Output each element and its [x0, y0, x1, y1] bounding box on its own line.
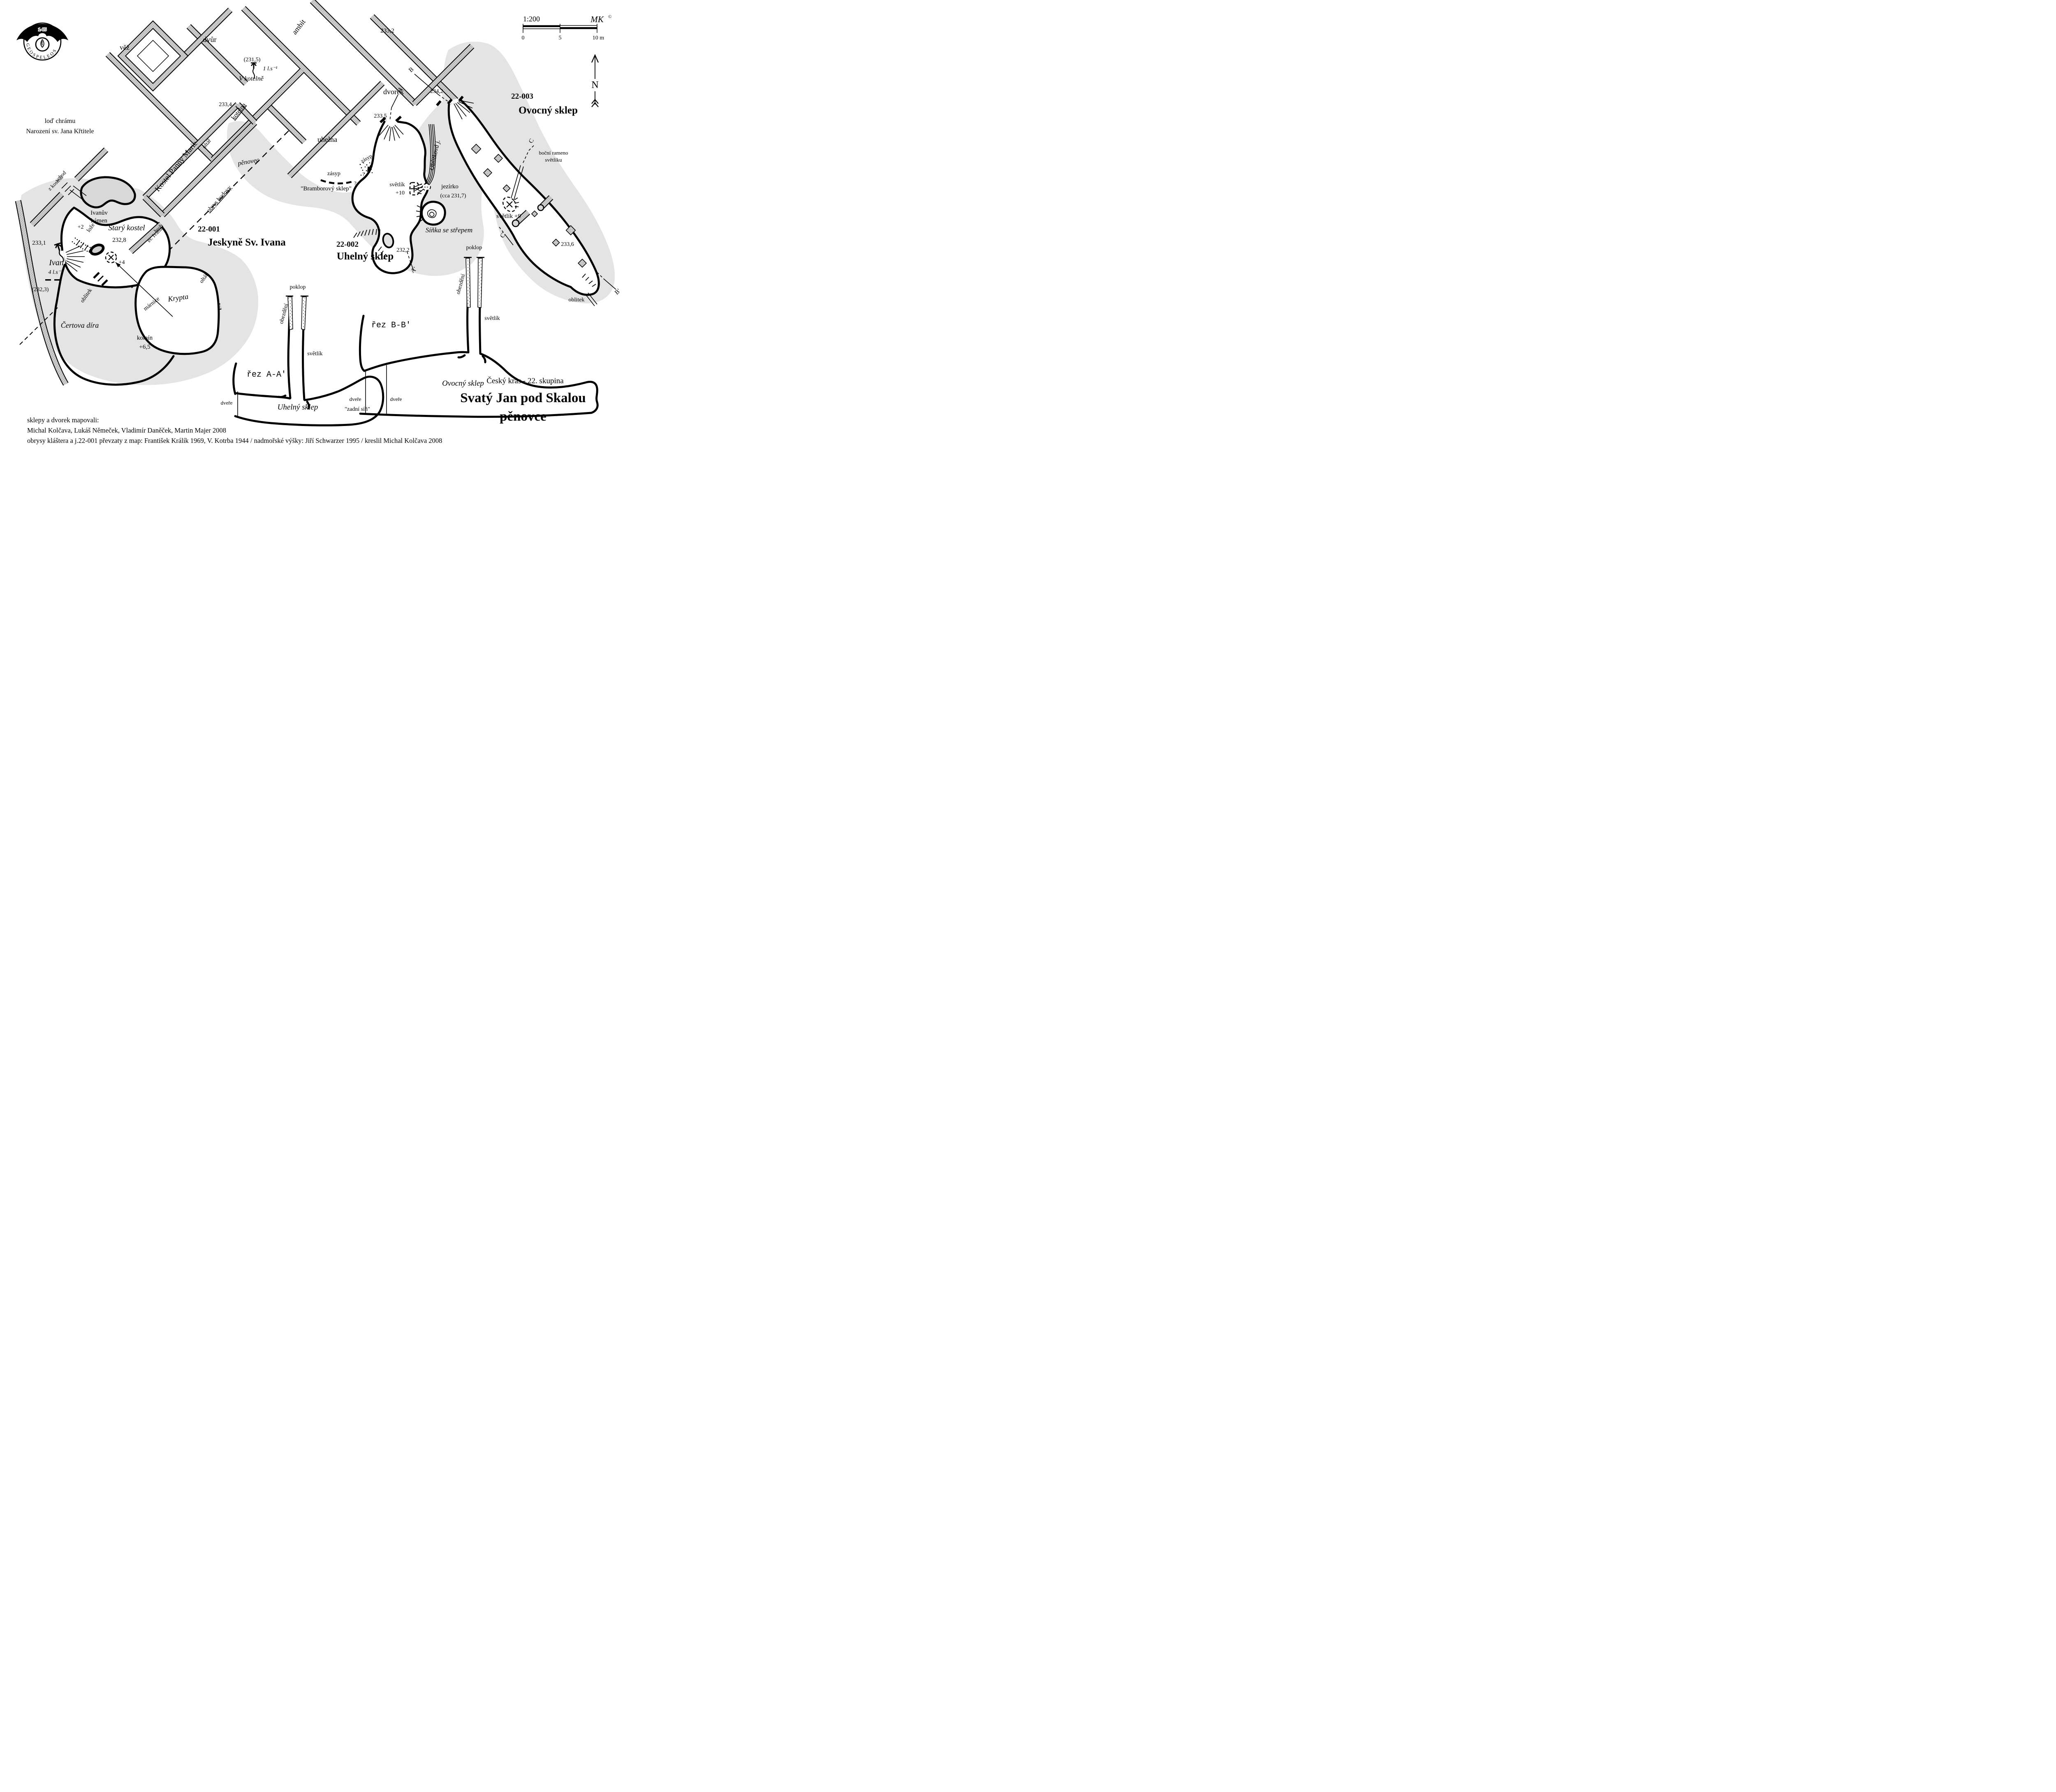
label-uhelna: uhelna — [317, 135, 337, 144]
label-rez-A: řez A-A' — [247, 370, 286, 380]
label-certova-dira: Čertova díra — [61, 321, 99, 329]
label-bramborovy: "Bramborový sklep" — [301, 185, 351, 192]
label-sinka: Síňka se střepem — [426, 226, 472, 234]
cave-map-page: 1-05 GEOSPELEOS 1:200 MK © 0 5 10 m N Če… — [0, 0, 626, 448]
credits-line-1: sklepy a dvorek mapovali: — [27, 416, 99, 424]
label-v-kotelne: V kotelně — [239, 75, 264, 82]
label-num-22-002: 22-002 — [336, 240, 359, 249]
label-bocni-2: světlíku — [545, 157, 562, 163]
scale-ratio: 1:200 — [523, 15, 540, 23]
label-alt-232-8: 232,8 — [112, 237, 126, 243]
label-bocni-1: boční rameno — [539, 150, 568, 156]
label-uhelny-rez: Uhelný sklep — [278, 403, 318, 412]
label-ovocny-rez: Ovocný sklep — [442, 379, 484, 388]
label-poklop-A: poklop — [290, 284, 306, 290]
label-komin-1: komín — [137, 335, 153, 341]
map-subtitle: pěnovce — [500, 409, 546, 424]
region-label: Český kras - 22. skupina — [486, 376, 564, 385]
scale-tick-0: 0 — [522, 35, 525, 41]
credits-line-3: obrysy kláštera a j.22-001 převzaty z ma… — [27, 437, 442, 445]
scale-tick-10: 10 m — [593, 35, 604, 41]
label-q1: ? — [362, 171, 365, 177]
north-letter: N — [591, 80, 598, 90]
label-vez: věž — [120, 44, 130, 51]
label-ivanuv-2: kámen — [91, 218, 107, 224]
label-num-22-003: 22-003 — [511, 92, 533, 101]
label-jezirko: jezírko — [441, 183, 458, 190]
label-cca-231-7: (cca 231,7) — [440, 193, 466, 199]
label-svetlik-A: světlík — [307, 351, 322, 357]
label-lod-1: loď chrámu — [45, 118, 76, 125]
label-num-22-001: 22-001 — [198, 225, 220, 234]
label-alt-233-5: 233,5 — [374, 113, 387, 119]
label-svetlik10-b: +10 — [396, 190, 405, 196]
label-alt-232-3: (232,3) — [32, 287, 49, 293]
label-zasyp-h: zásyp — [327, 171, 340, 177]
label-alt-233-1: 233,1 — [32, 240, 46, 246]
map-title: Svatý Jan pod Skalou — [460, 391, 586, 405]
label-stary-kostel: Starý kostel — [108, 224, 145, 232]
label-flow-1ls: 1 l.s⁻¹ — [263, 66, 278, 72]
label-poklop-B: poklop — [466, 245, 482, 251]
label-alt-234-2: 234,2 — [430, 88, 443, 95]
jezirko-pond — [422, 184, 431, 190]
label-ivan: Ivan — [49, 258, 64, 267]
label-dvere-A: dveře — [221, 400, 233, 406]
label-svetlik-B: světlík — [484, 315, 500, 322]
label-jeskyne: Jeskyně Sv. Ivana — [208, 237, 286, 248]
label-rez-B: řez B-B' — [371, 321, 411, 330]
label-alt-233-6: 233,6 — [561, 241, 574, 248]
label-alt-233-4: 233,4 — [219, 102, 232, 108]
label-dvere-B1: dveře — [350, 396, 361, 402]
label-q2: ? — [354, 180, 357, 186]
label-alt-231-5: (231,5) — [244, 57, 261, 63]
label-uhelny-plan: Uhelný sklep — [337, 251, 394, 262]
label-dvere-B2: dveře — [390, 396, 402, 402]
copyright-mark: © — [608, 14, 611, 19]
label-p4: +4 — [119, 259, 125, 266]
logo-group-number: 1-05 — [38, 27, 47, 32]
scale-tick-5: 5 — [559, 35, 562, 41]
label-alt-232-2: 232,2 — [396, 247, 410, 253]
label-svetlik10-a: světlík — [389, 182, 405, 188]
label-komin-2: +6,5 — [139, 344, 150, 350]
label-ovocny-plan: Ovocný sklep — [519, 105, 578, 116]
label-p2: +2 — [78, 224, 84, 230]
label-flow-4ls: 4 l.s⁻¹ — [49, 269, 63, 276]
credits-line-2: Michal Kolčava, Lukáš Němeček, Vladimír … — [27, 426, 226, 434]
label-ivanuv-1: Ivanův — [90, 210, 108, 216]
map-canvas: 1-05 GEOSPELEOS 1:200 MK © 0 5 10 m N Če… — [0, 0, 626, 448]
label-alt-233-2: 233,2 — [380, 28, 394, 34]
author-initials: MK — [590, 14, 604, 24]
label-dvur: dvůr — [203, 35, 217, 44]
label-svetlik9: světlík +9 — [496, 213, 521, 220]
label-zadni-sin: "zadní síň" — [345, 406, 370, 412]
label-lod-2: Narození sv. Jana Křtitele — [26, 128, 94, 135]
label-oblitek-right: oblitek — [569, 297, 585, 303]
